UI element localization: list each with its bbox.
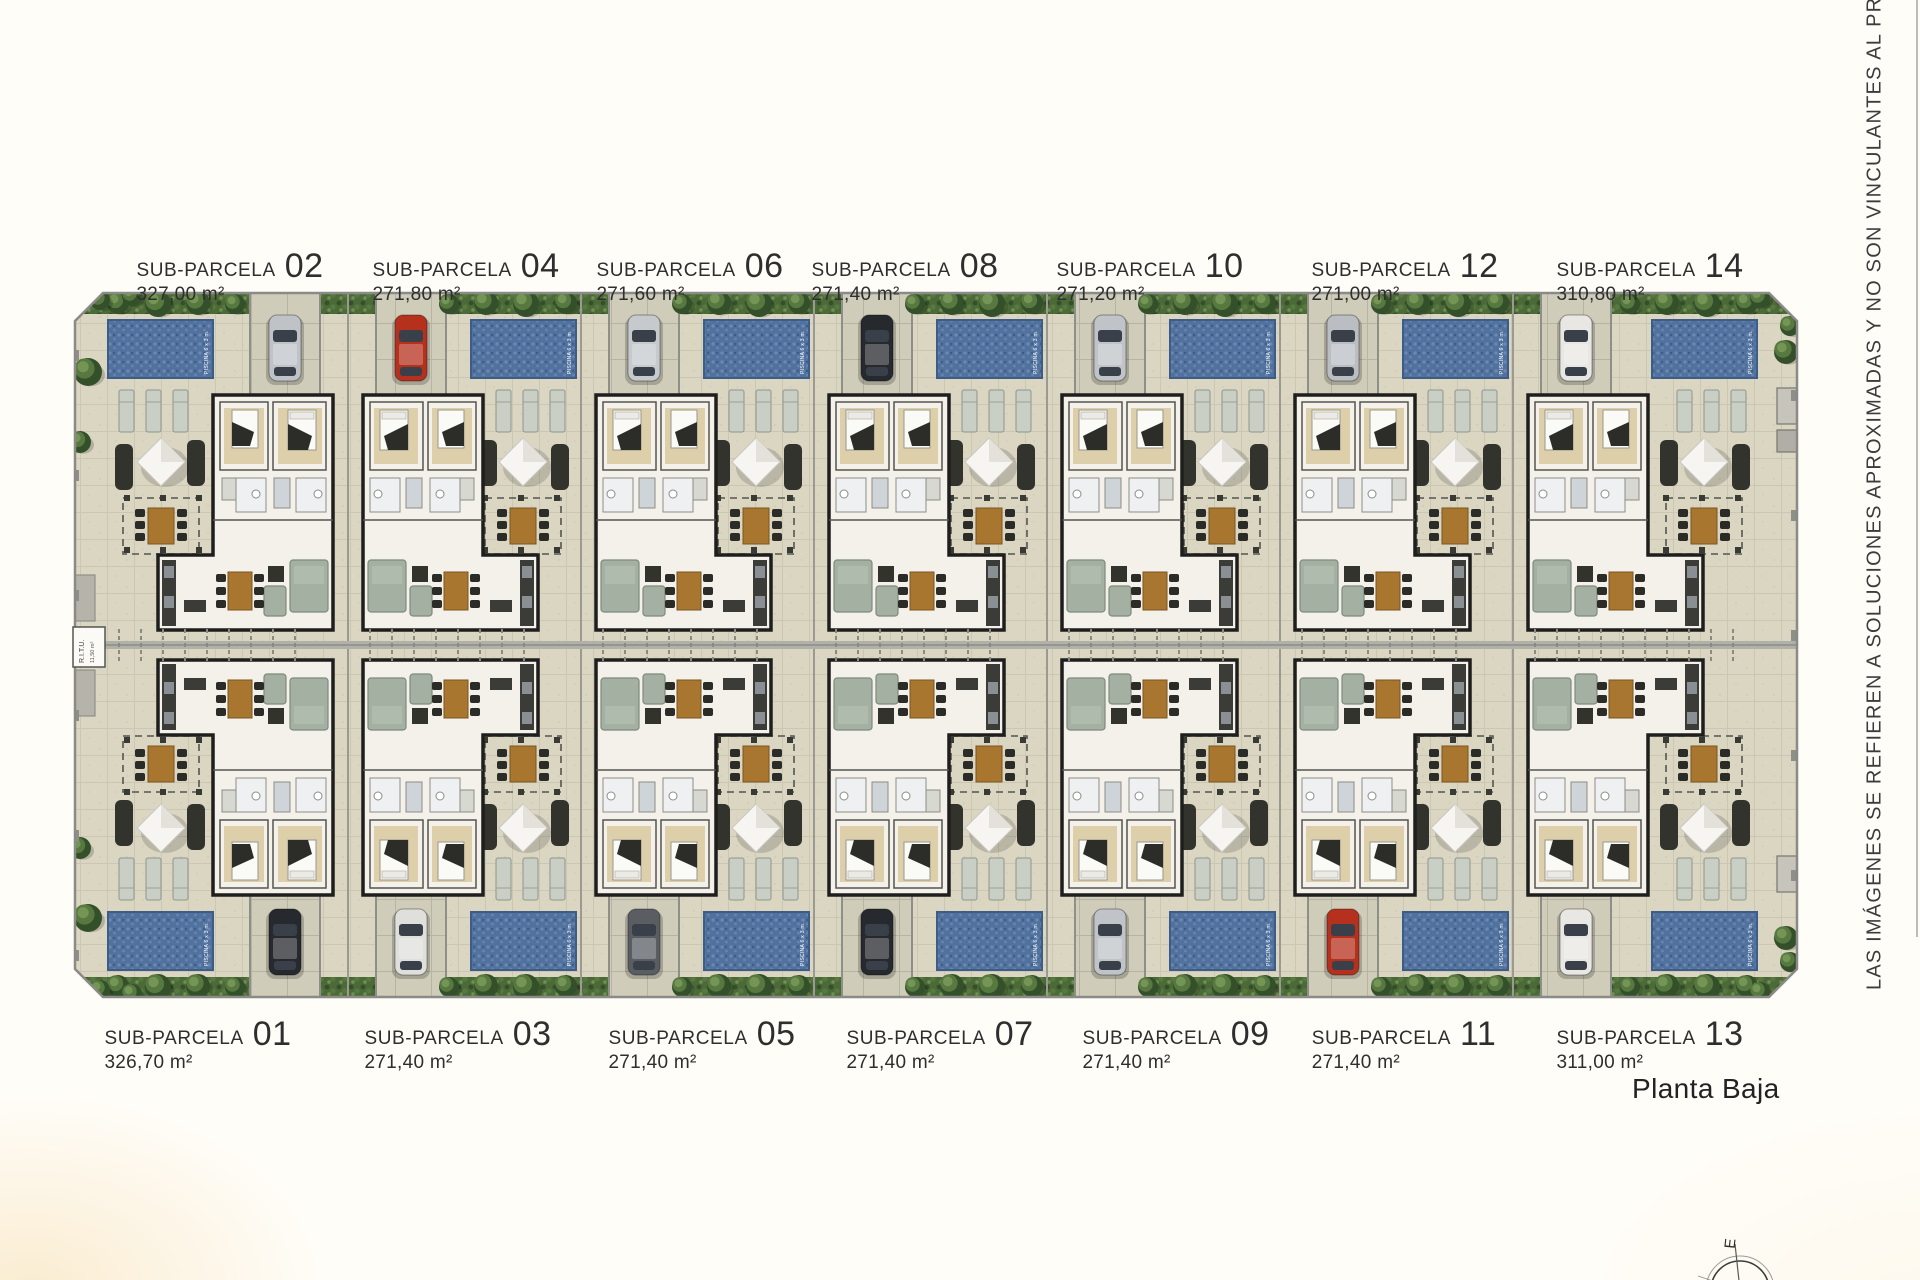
parcel-label-12: SUB-PARCELA 12 271,00 m² <box>1311 246 1498 304</box>
compass-rose: E <box>1680 1232 1820 1280</box>
parcel-label-prefix: SUB-PARCELA <box>1556 1029 1695 1048</box>
disclaimer-vertical-text: LAS IMÁGENES SE REFIEREN A SOLUCIONES AP… <box>1862 0 1888 990</box>
utility-room-label: R.I.T.U. <box>79 640 86 663</box>
parcel-area: 271,40 m² <box>1082 1053 1269 1072</box>
parcel-number: 11 <box>1460 1017 1496 1051</box>
pool-size-label: PISCINA 6 x 3 m. <box>800 922 806 966</box>
pool-size-label: PISCINA 6 x 3 m. <box>1033 330 1039 374</box>
parcel-number: 14 <box>1705 249 1744 283</box>
parcel-area: 311,00 m² <box>1556 1053 1743 1072</box>
parcel-label-13: SUB-PARCELA 13 311,00 m² <box>1556 1014 1743 1072</box>
parcel-area: 271,40 m² <box>364 1053 551 1072</box>
parcel-number: 12 <box>1460 249 1499 283</box>
parcel-number: 03 <box>513 1017 552 1051</box>
parcel-label-prefix: SUB-PARCELA <box>364 1029 503 1048</box>
utility-room-ritu: R.I.T.U.11,50 m² <box>73 627 105 667</box>
plan-title: Planta Baja <box>1632 1073 1780 1105</box>
pool-size-label: PISCINA 6 x 3 m. <box>800 330 806 374</box>
parcel-area: 271,00 m² <box>1311 285 1498 304</box>
parcel-area: 271,40 m² <box>811 285 998 304</box>
parcel-area: 327,00 m² <box>136 285 323 304</box>
parcel-label-06: SUB-PARCELA 06 271,60 m² <box>596 246 783 304</box>
parcel-number: 04 <box>521 249 560 283</box>
pool-size-label: PISCINA 6 x 3 m. <box>1266 922 1272 966</box>
parcel-number: 13 <box>1705 1017 1744 1051</box>
pool-size-label: PISCINA 6 x 3 m. <box>567 330 573 374</box>
parcel-area: 271,40 m² <box>1312 1053 1497 1072</box>
pool-size-label: PISCINA 6 x 3 m. <box>1748 330 1754 374</box>
parcel-label-01: SUB-PARCELA 01 326,70 m² <box>104 1014 291 1072</box>
pool-size-label: PISCINA 6 x 3 m. <box>567 922 573 966</box>
parcel-label-prefix: SUB-PARCELA <box>596 261 735 280</box>
parcel-label-prefix: SUB-PARCELA <box>372 261 511 280</box>
pool-size-label: PISCINA 6 x 3 m. <box>1748 922 1754 966</box>
parcel-number: 07 <box>995 1017 1034 1051</box>
parcel-number: 09 <box>1231 1017 1270 1051</box>
parcel-label-08: SUB-PARCELA 08 271,40 m² <box>811 246 998 304</box>
parcel-label-prefix: SUB-PARCELA <box>608 1029 747 1048</box>
pool-size-label: PISCINA 6 x 3 m. <box>1266 330 1272 374</box>
parcel-label-14: SUB-PARCELA 14 310,80 m² <box>1556 246 1743 304</box>
parcel-number: 06 <box>745 249 784 283</box>
parcel-number: 05 <box>757 1017 796 1051</box>
parcel-label-04: SUB-PARCELA 04 271,80 m² <box>372 246 559 304</box>
parcel-label-prefix: SUB-PARCELA <box>1311 261 1450 280</box>
parcel-label-prefix: SUB-PARCELA <box>811 261 950 280</box>
parcel-label-prefix: SUB-PARCELA <box>1082 1029 1221 1048</box>
pool-size-label: PISCINA 6 x 3 m. <box>204 330 210 374</box>
parcel-number: 01 <box>253 1017 292 1051</box>
parcel-label-prefix: SUB-PARCELA <box>104 1029 243 1048</box>
parcel-label-11: SUB-PARCELA 11 271,40 m² <box>1312 1014 1497 1072</box>
utility-room-area: 11,50 m² <box>90 642 96 663</box>
parcel-area: 271,20 m² <box>1056 285 1243 304</box>
parcel-area: 271,80 m² <box>372 285 559 304</box>
parcel-area: 326,70 m² <box>104 1053 291 1072</box>
parcel-label-02: SUB-PARCELA 02 327,00 m² <box>136 246 323 304</box>
pool-size-label: PISCINA 6 x 3 m. <box>1033 922 1039 966</box>
parcel-label-prefix: SUB-PARCELA <box>846 1029 985 1048</box>
parcel-area: 271,60 m² <box>596 285 783 304</box>
parcel-label-07: SUB-PARCELA 07 271,40 m² <box>846 1014 1033 1072</box>
pool-size-label: PISCINA 6 x 3 m. <box>204 922 210 966</box>
page-edge-line <box>1916 0 1918 937</box>
parcel-label-prefix: SUB-PARCELA <box>1056 261 1195 280</box>
compass-east-label: E <box>1722 1238 1740 1250</box>
parcel-number: 02 <box>285 249 324 283</box>
parcel-label-05: SUB-PARCELA 05 271,40 m² <box>608 1014 795 1072</box>
parcel-label-prefix: SUB-PARCELA <box>1312 1029 1451 1048</box>
parcel-number: 08 <box>960 249 999 283</box>
parcel-area: 271,40 m² <box>846 1053 1033 1072</box>
parcel-area: 271,40 m² <box>608 1053 795 1072</box>
parcel-area: 310,80 m² <box>1556 285 1743 304</box>
plan-area <box>69 286 1803 1005</box>
parcel-label-10: SUB-PARCELA 10 271,20 m² <box>1056 246 1243 304</box>
parcel-label-prefix: SUB-PARCELA <box>136 261 275 280</box>
pool-size-label: PISCINA 6 x 3 m. <box>1499 922 1505 966</box>
parcel-number: 10 <box>1205 249 1244 283</box>
parcel-label-prefix: SUB-PARCELA <box>1556 261 1695 280</box>
parcel-label-03: SUB-PARCELA 03 271,40 m² <box>364 1014 551 1072</box>
pool-size-label: PISCINA 6 x 3 m. <box>1499 330 1505 374</box>
parcel-label-09: SUB-PARCELA 09 271,40 m² <box>1082 1014 1269 1072</box>
